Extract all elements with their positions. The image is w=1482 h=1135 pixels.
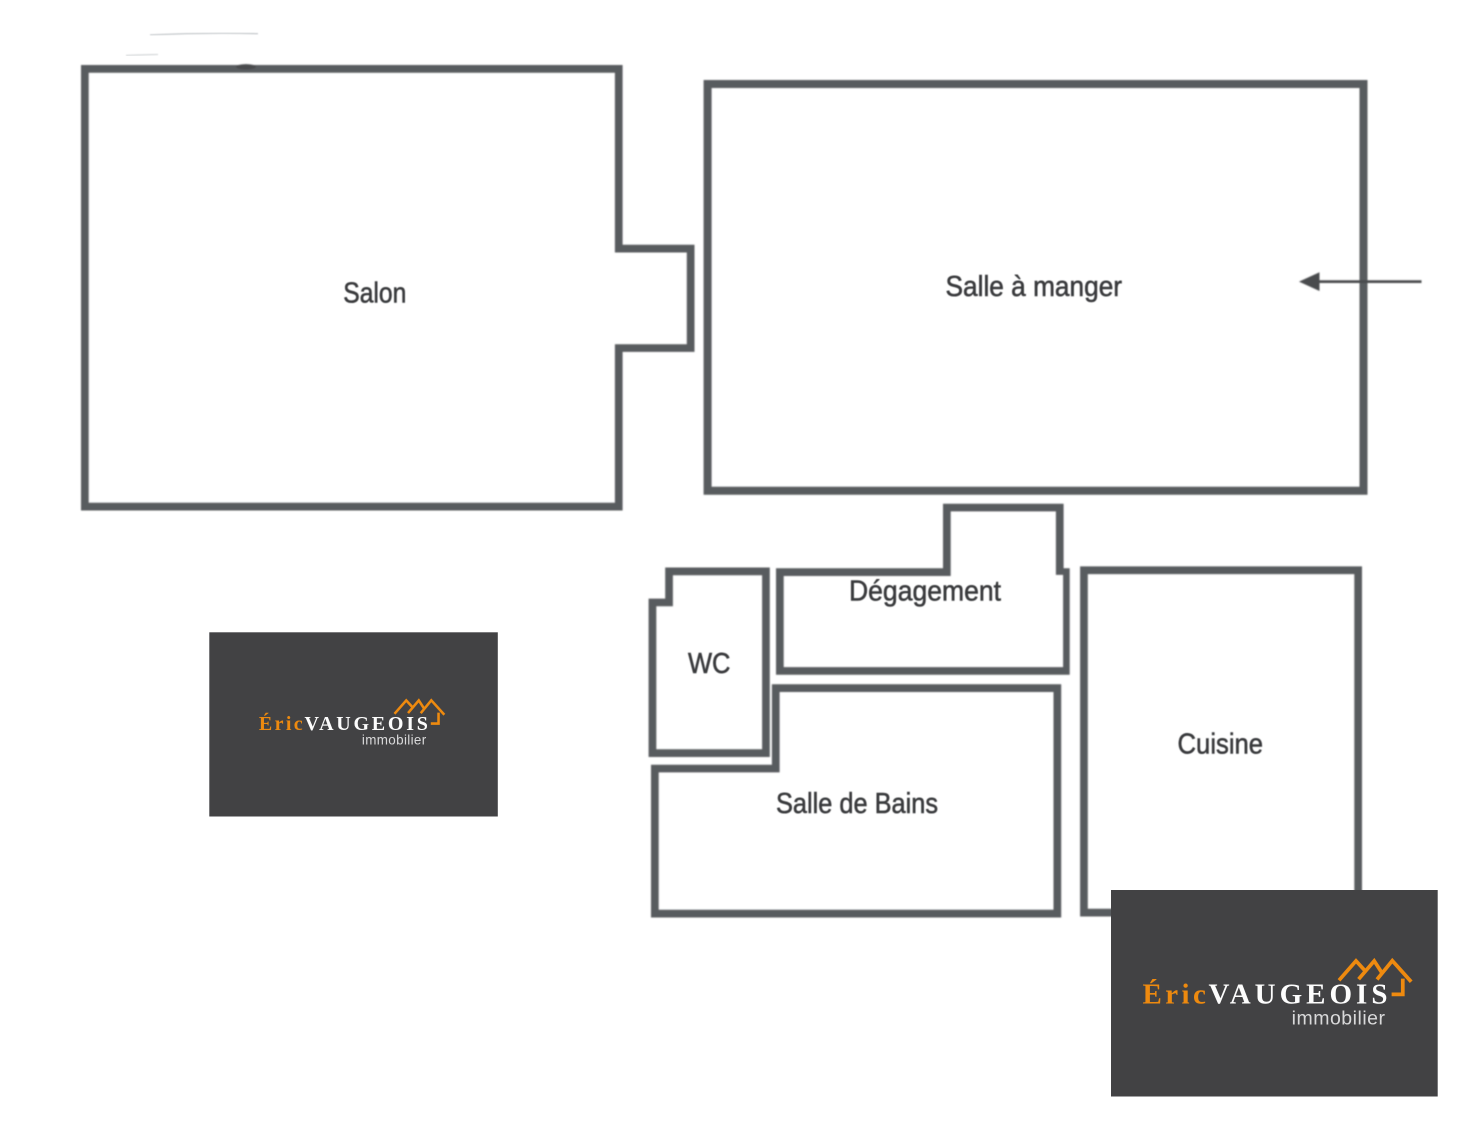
svg-text:Salle à manger: Salle à manger xyxy=(946,271,1123,303)
svg-text:immobilier: immobilier xyxy=(1292,1008,1386,1030)
svg-text:Dégagement: Dégagement xyxy=(849,576,1001,608)
svg-text:Salle de Bains: Salle de Bains xyxy=(776,788,938,820)
svg-text:Cuisine: Cuisine xyxy=(1178,728,1264,760)
svg-text:VAUGEOIS: VAUGEOIS xyxy=(1209,979,1392,1011)
svg-text:Éric: Éric xyxy=(1143,978,1210,1011)
svg-text:Salon: Salon xyxy=(343,278,406,310)
svg-text:WC: WC xyxy=(688,648,731,680)
